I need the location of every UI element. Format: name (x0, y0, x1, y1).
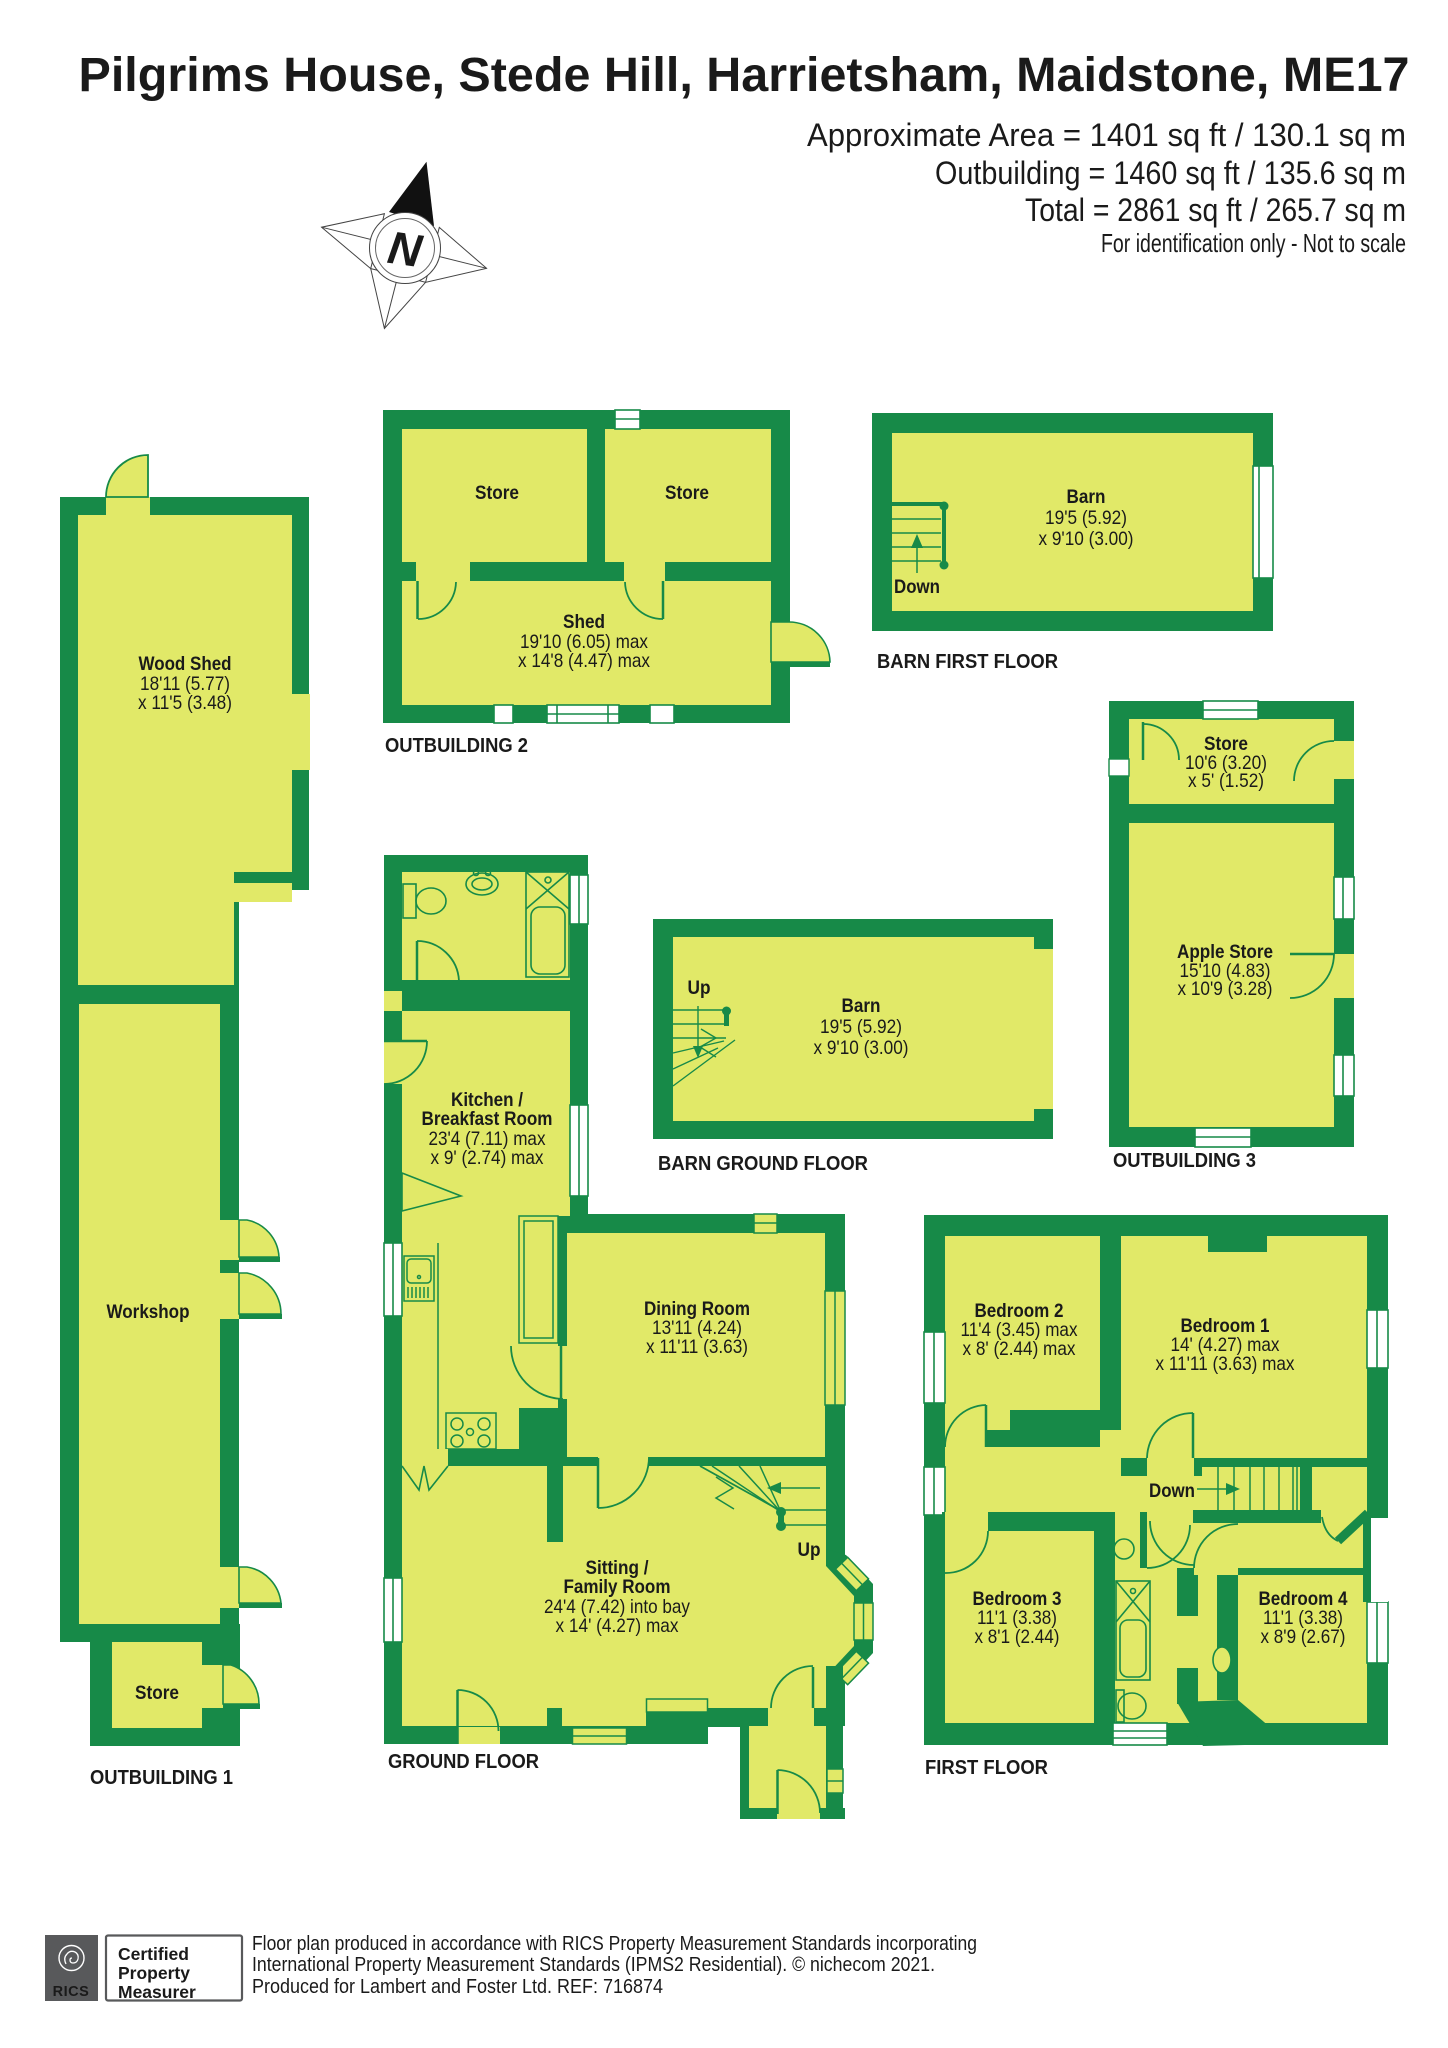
svg-text:Pilgrims House, Stede Hill, Ha: Pilgrims House, Stede Hill, Harrietsham,… (79, 48, 1410, 102)
svg-text:Measurer: Measurer (118, 1982, 196, 2002)
svg-text:x 9'10 (3.00): x 9'10 (3.00) (1039, 528, 1134, 550)
svg-text:x 8'9 (2.67): x 8'9 (2.67) (1261, 1626, 1346, 1648)
svg-text:x 9'10 (3.00): x 9'10 (3.00) (814, 1037, 909, 1059)
svg-text:Breakfast Room: Breakfast Room (422, 1108, 553, 1130)
svg-text:x 14'8 (4.47) max: x 14'8 (4.47) max (518, 650, 650, 672)
svg-text:x 11'11 (3.63) max: x 11'11 (3.63) max (1156, 1353, 1295, 1375)
svg-text:Store: Store (665, 482, 709, 504)
svg-text:Down: Down (894, 576, 940, 598)
svg-text:Certified: Certified (118, 1944, 189, 1964)
svg-text:x 11'11 (3.63): x 11'11 (3.63) (646, 1336, 748, 1358)
svg-text:Floor plan produced in accorda: Floor plan produced in accordance with R… (252, 1933, 977, 1955)
svg-text:Down: Down (1149, 1480, 1195, 1502)
svg-text:Barn: Barn (842, 995, 881, 1017)
svg-text:Family Room: Family Room (564, 1576, 671, 1598)
svg-text:x 11'5 (3.48): x 11'5 (3.48) (138, 692, 232, 714)
svg-text:Approximate Area = 1401 sq ft: Approximate Area = 1401 sq ft / 130.1 sq… (807, 117, 1406, 153)
svg-text:Outbuilding = 1460 sq ft / 135: Outbuilding = 1460 sq ft / 135.6 sq m (935, 155, 1406, 191)
svg-text:OUTBUILDING 3: OUTBUILDING 3 (1113, 1150, 1256, 1172)
svg-text:x 14' (4.27) max: x 14' (4.27) max (556, 1615, 679, 1637)
svg-text:Store: Store (135, 1682, 179, 1704)
svg-text:x 8'1 (2.44): x 8'1 (2.44) (975, 1626, 1060, 1648)
svg-text:OUTBUILDING 2: OUTBUILDING 2 (385, 735, 528, 757)
svg-text:Store: Store (475, 482, 519, 504)
svg-text:FIRST FLOOR: FIRST FLOOR (925, 1757, 1049, 1779)
svg-text:x 10'9 (3.28): x 10'9 (3.28) (1178, 978, 1273, 1000)
svg-text:RICS: RICS (53, 1984, 90, 2000)
svg-text:19'5 (5.92): 19'5 (5.92) (1045, 507, 1127, 529)
svg-text:Up: Up (798, 1539, 821, 1561)
svg-text:Wood Shed: Wood Shed (139, 653, 232, 675)
svg-text:OUTBUILDING 1: OUTBUILDING 1 (90, 1767, 233, 1789)
svg-text:International Property Measure: International Property Measurement Stand… (252, 1954, 935, 1976)
svg-text:Up: Up (688, 977, 711, 999)
svg-text:Workshop: Workshop (107, 1301, 190, 1323)
svg-text:Barn: Barn (1067, 486, 1106, 508)
svg-text:BARN FIRST FLOOR: BARN FIRST FLOOR (877, 651, 1059, 673)
svg-text:x 9' (2.74) max: x 9' (2.74) max (431, 1147, 544, 1169)
svg-text:x 8' (2.44) max: x 8' (2.44) max (963, 1338, 1076, 1360)
svg-text:Produced for Lambert and Foste: Produced for Lambert and Foster Ltd. REF… (252, 1976, 663, 1998)
svg-text:19'5 (5.92): 19'5 (5.92) (820, 1016, 902, 1038)
svg-text:For identification only - Not: For identification only - Not to scale (1101, 228, 1406, 258)
svg-text:GROUND FLOOR: GROUND FLOOR (388, 1751, 540, 1773)
svg-text:BARN GROUND FLOOR: BARN GROUND FLOOR (658, 1153, 869, 1175)
svg-text:x 5' (1.52): x 5' (1.52) (1188, 770, 1264, 792)
svg-text:Property: Property (118, 1963, 190, 1983)
svg-text:Total = 2861 sq ft / 265.7 sq: Total = 2861 sq ft / 265.7 sq m (1025, 192, 1406, 228)
svg-text:Shed: Shed (563, 611, 605, 633)
